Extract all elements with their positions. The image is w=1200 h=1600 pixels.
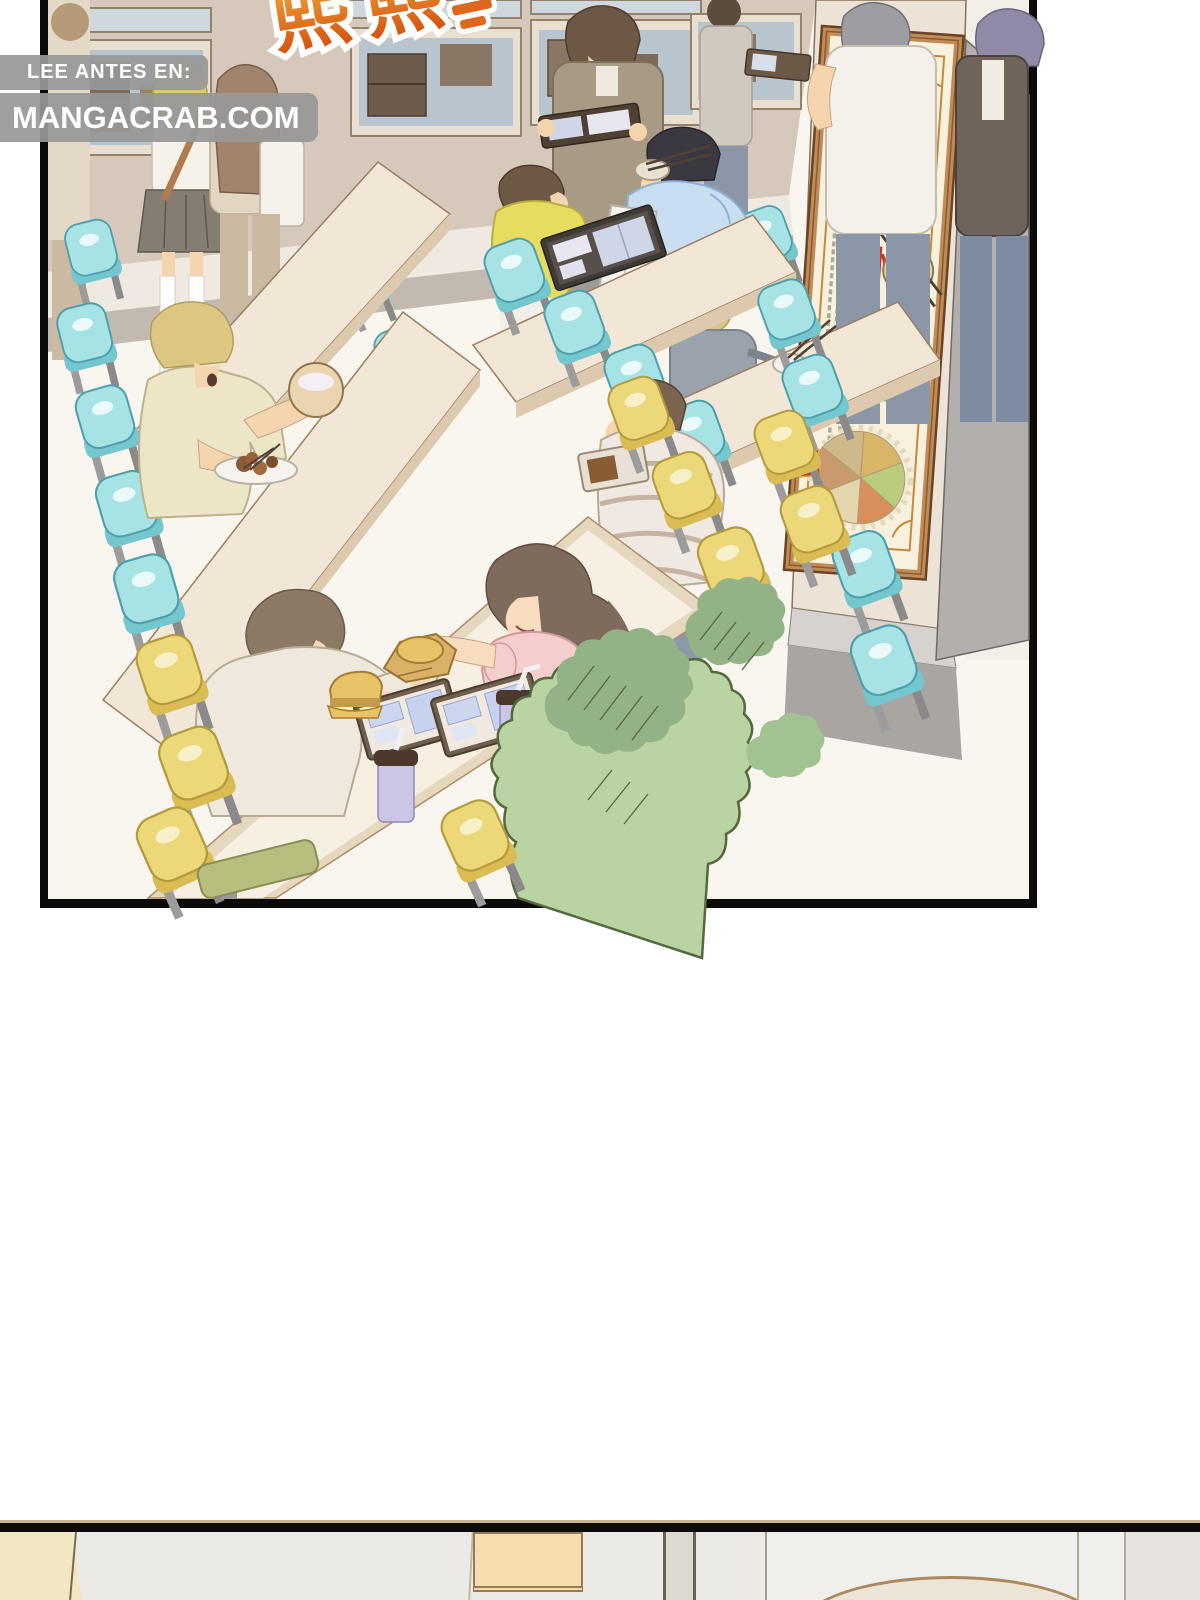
bush-shadow <box>686 577 786 665</box>
wall-seam <box>1077 1532 1079 1600</box>
open-mouth <box>207 374 217 387</box>
column <box>666 1532 693 1600</box>
watermark-site-badge: MANGACRAB.COM <box>0 93 318 142</box>
wrapped-burger <box>384 634 456 682</box>
burger <box>328 672 382 718</box>
bottom-panel-border <box>0 1523 1200 1532</box>
door-panel <box>473 1532 583 1592</box>
manga-page: 珍 惜 粮 食 <box>0 0 1200 1600</box>
watermark-site: MANGACRAB.COM <box>12 100 300 136</box>
chair-cyan <box>70 381 149 485</box>
column-edge <box>693 1532 696 1600</box>
person-background-gray <box>700 0 752 216</box>
tote-bag <box>260 140 304 226</box>
bottom-panel <box>0 1532 1200 1600</box>
watermark-prefix: LEE ANTES EN: <box>27 61 192 84</box>
wall-right <box>1126 1532 1200 1600</box>
person-purple-hair <box>956 9 1044 422</box>
watermark-badge: LEE ANTES EN: <box>0 55 208 90</box>
